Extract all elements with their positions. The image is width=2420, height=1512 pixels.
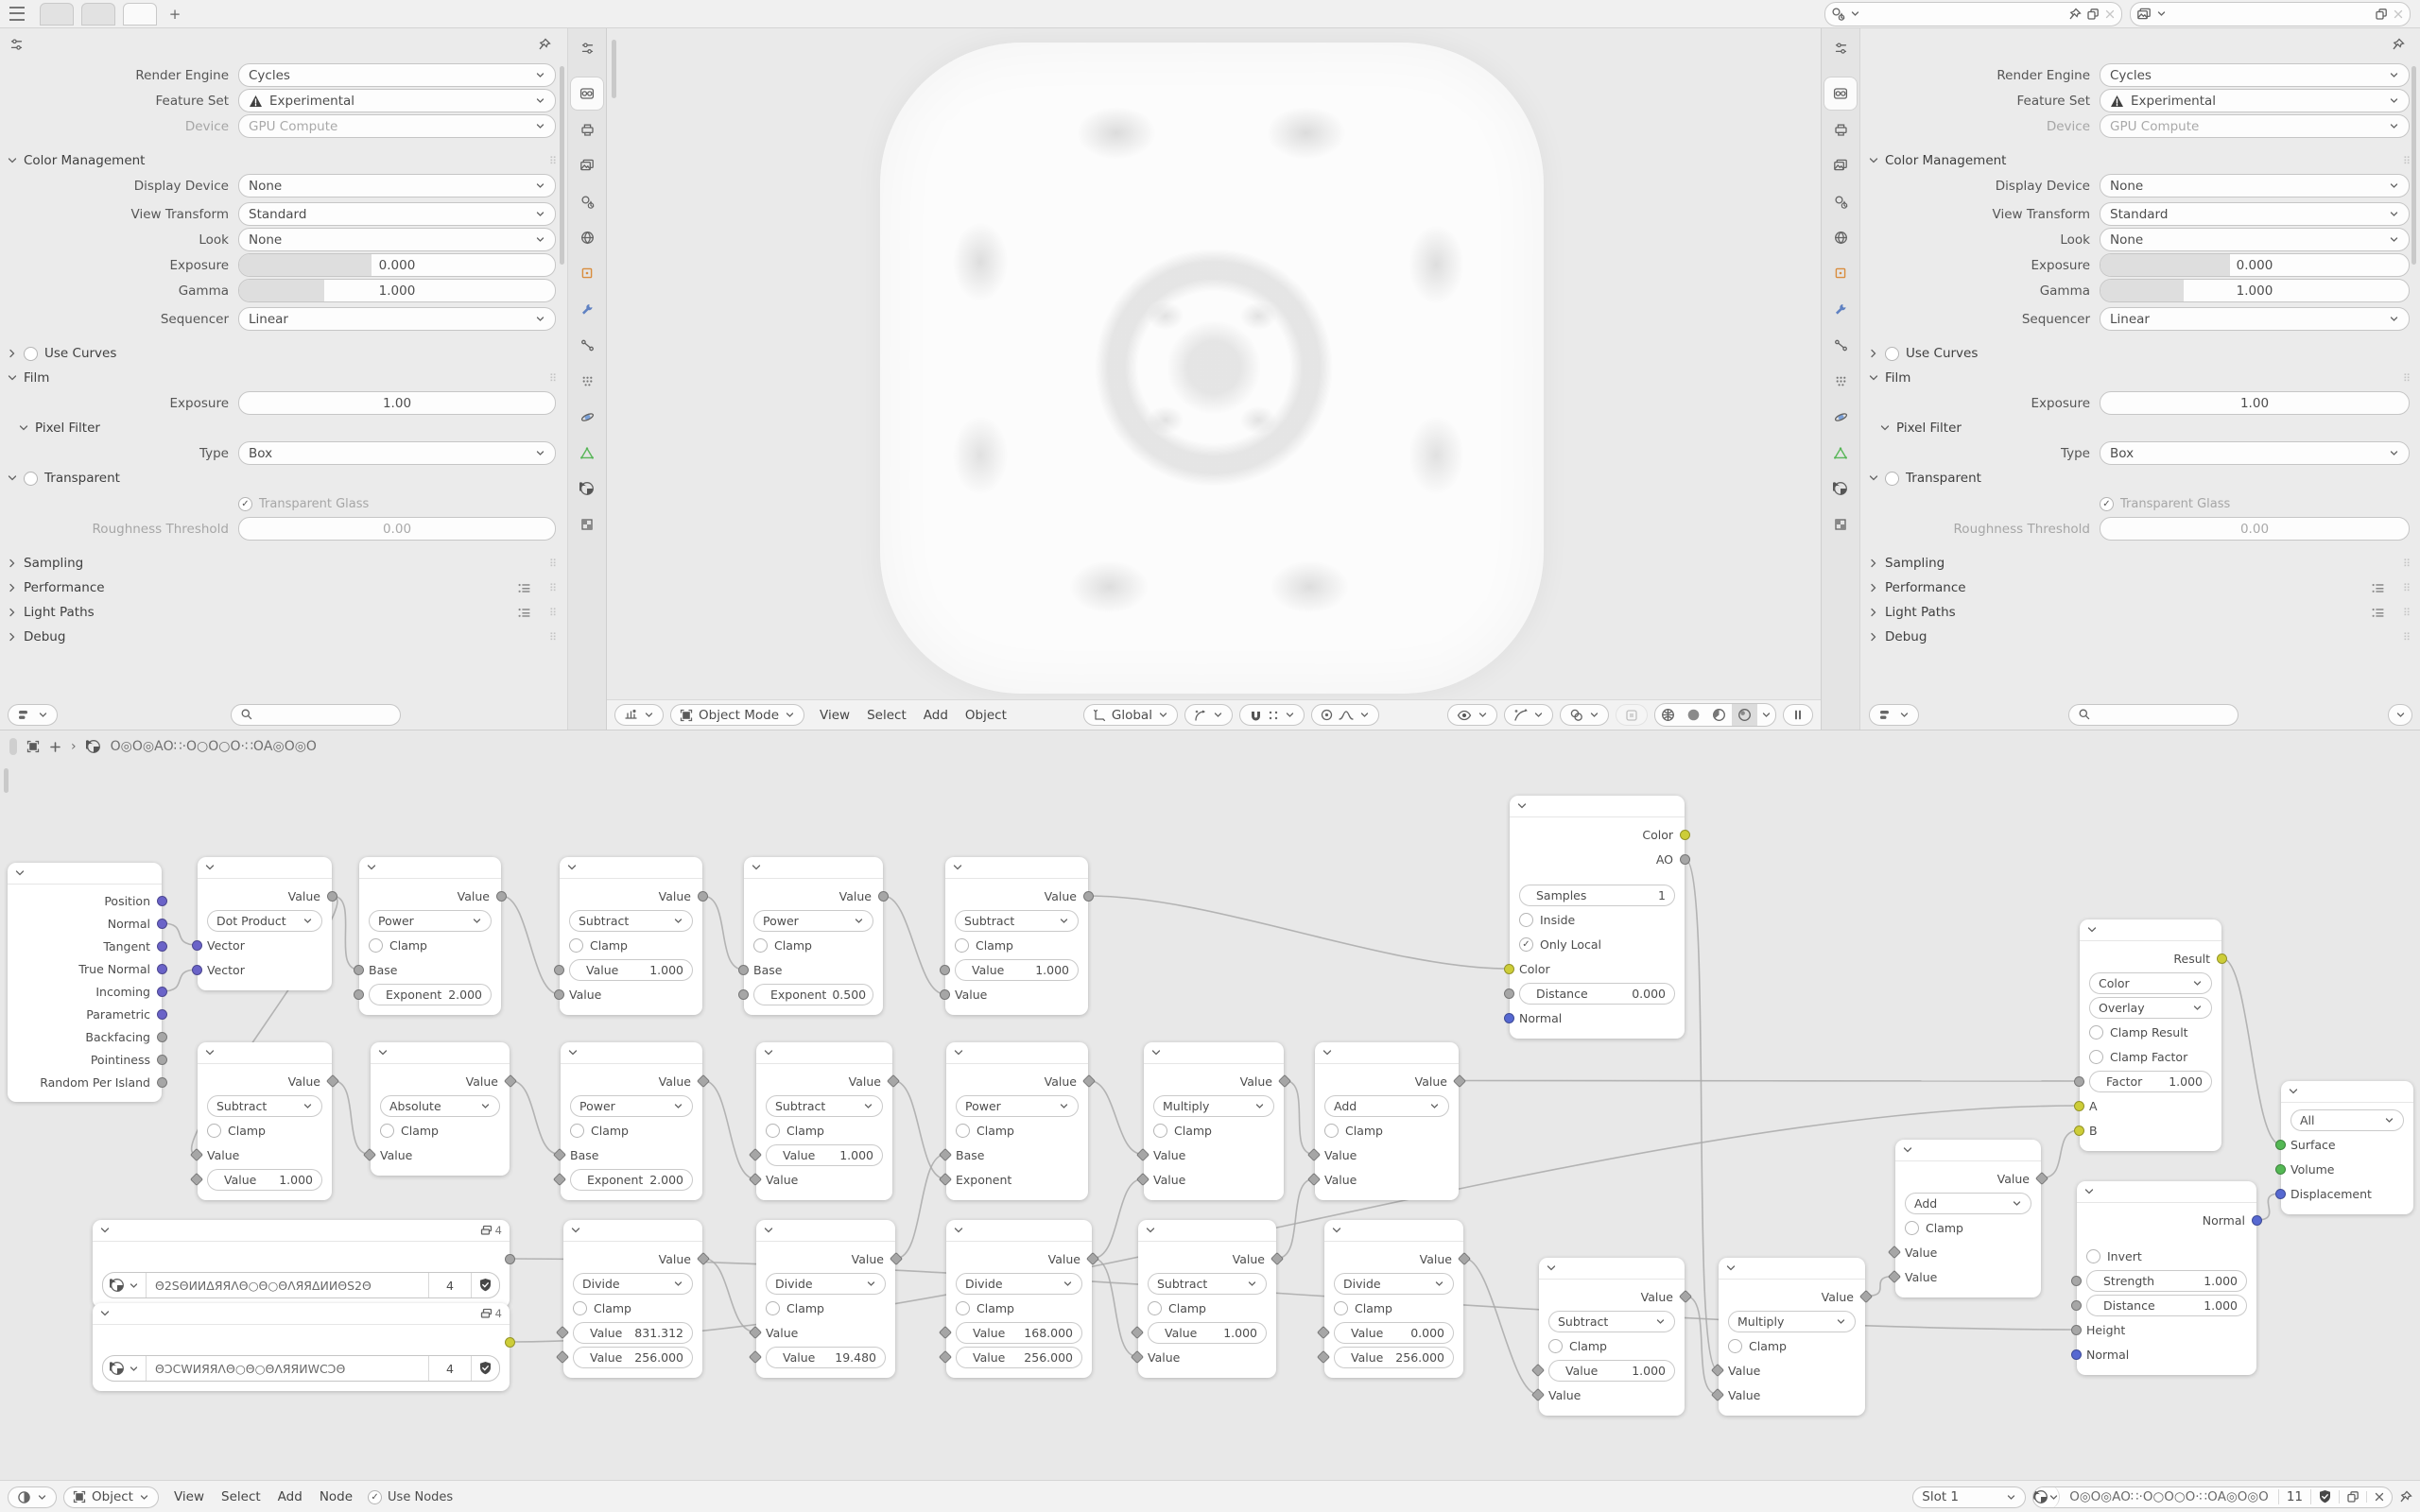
node-p5[interactable]: ValuePowerClampBaseExponent0.500 (744, 857, 883, 1015)
properties-tab-world[interactable] (1824, 221, 1857, 253)
node-dropdown[interactable]: Subtract (955, 910, 1079, 932)
input-socket[interactable] (2275, 1189, 2286, 1199)
node-header[interactable] (1324, 1220, 1463, 1242)
datablock-name-field[interactable]: Θ2SΘИИΔЯЯΛΘ○Θ○ΘΛЯЯΔИИΘS2Θ (147, 1279, 428, 1293)
input-socket[interactable] (2071, 1300, 2082, 1311)
node-header[interactable] (1138, 1220, 1276, 1242)
checkbox-inside[interactable]: Inside (1519, 908, 1675, 931)
resize-handle[interactable] (9, 738, 17, 755)
input-socket[interactable] (939, 1147, 952, 1160)
section-use-curves[interactable]: Use Curves (1861, 341, 2420, 366)
close-icon[interactable] (2366, 1491, 2392, 1503)
checkbox-clamp[interactable]: Clamp (956, 1297, 1082, 1319)
scrollbar[interactable] (2411, 66, 2416, 265)
pin-icon[interactable] (2399, 1490, 2412, 1503)
checkbox-clamp[interactable]: Clamp (766, 1119, 883, 1142)
input-socket[interactable] (1317, 1325, 1330, 1338)
menu-select[interactable]: Select (213, 1483, 269, 1511)
properties-tab-nodes[interactable] (571, 329, 603, 361)
value-field[interactable]: Value168.000 (956, 1322, 1082, 1344)
node-d19[interactable]: ValueDivideClampValue168.000Value256.000 (946, 1220, 1092, 1378)
field-roughness-threshold[interactable]: 0.00 (2100, 517, 2410, 541)
node-dropdown[interactable]: Subtract (1548, 1311, 1675, 1332)
drag-grip-icon[interactable]: ⠿ (2403, 607, 2411, 619)
checkbox-icon[interactable] (24, 472, 38, 486)
checkbox-icon[interactable] (1885, 472, 1899, 486)
input-socket[interactable] (553, 1147, 566, 1160)
drag-grip-icon[interactable]: ⠿ (2403, 155, 2411, 167)
input-socket[interactable] (1531, 1387, 1545, 1400)
node-abs8[interactable]: ValueAbsoluteClampValue (371, 1042, 510, 1176)
viewport-3d[interactable]: Object Mode ViewSelectAddObject Global (607, 28, 1821, 730)
section-light-paths[interactable]: Light Paths⠿ (1861, 600, 2420, 625)
properties-tab-nodes[interactable] (1824, 329, 1857, 361)
shading-material-button[interactable] (1706, 704, 1732, 726)
output-socket[interactable] (504, 1074, 517, 1087)
input-socket[interactable] (1711, 1387, 1724, 1400)
node-canvas[interactable]: PositionNormalTangentTrue NormalIncoming… (0, 763, 2420, 1480)
node-s22[interactable]: ValueSubtractClampValue1.000Value (1539, 1258, 1685, 1416)
input-socket[interactable] (554, 965, 564, 975)
node-mix[interactable]: ResultColorOverlayClamp ResultClamp Fact… (2080, 919, 2221, 1151)
properties-tab-object[interactable] (1824, 257, 1857, 289)
section-use-curves[interactable]: Use Curves (0, 341, 567, 366)
input-socket[interactable] (2074, 1125, 2084, 1136)
dropdown-display-device[interactable]: None (238, 174, 556, 198)
node-gA[interactable]: 4 Θ2SΘИИΔЯЯΛΘ○Θ○ΘΛЯЯΔИИΘS2Θ 4 (93, 1220, 510, 1308)
slot-selector[interactable]: Slot 1 (1912, 1486, 2026, 1508)
section-sampling[interactable]: Sampling⠿ (0, 551, 567, 576)
properties-tab-object-data[interactable] (1824, 437, 1857, 469)
node-gB[interactable]: 4 ΘϽϹWИЯЯΛΘ○Θ○ΘΛЯЯИWϹϽΘ 4 (93, 1303, 510, 1391)
dropdown-device[interactable]: GPU Compute (2100, 114, 2410, 138)
node-editor-scrollbar[interactable] (4, 768, 9, 793)
properties-tab-texture[interactable] (571, 508, 603, 541)
properties-tab-tool[interactable] (571, 32, 603, 64)
value-field[interactable]: Value1.000 (1148, 1322, 1267, 1344)
input-socket[interactable] (2074, 1076, 2084, 1087)
properties-tab-modifiers[interactable] (1824, 293, 1857, 325)
output-socket[interactable] (697, 1251, 710, 1264)
input-socket[interactable] (1504, 1013, 1514, 1023)
proportional-editing[interactable] (1311, 704, 1379, 726)
node-header[interactable] (756, 1220, 895, 1242)
properties-tab-particles[interactable] (1824, 365, 1857, 397)
input-socket[interactable] (749, 1325, 762, 1338)
value-field[interactable]: Exponent0.500 (753, 984, 873, 1005)
pin-icon[interactable] (2068, 8, 2082, 21)
dropdown-sequencer[interactable]: Linear (2100, 307, 2410, 331)
menu-object[interactable]: Object (957, 701, 1015, 730)
value-field[interactable]: Value1.000 (569, 959, 693, 981)
value-field[interactable]: Exponent2.000 (369, 984, 492, 1005)
node-d18[interactable]: ValueDivideClampValueValue19.480 (756, 1220, 895, 1378)
node-header[interactable] (359, 857, 501, 879)
output-socket[interactable] (1458, 1251, 1471, 1264)
menu-view[interactable]: View (811, 701, 858, 730)
node-header[interactable] (1539, 1258, 1685, 1280)
section-debug[interactable]: Debug⠿ (1861, 625, 2420, 649)
drag-grip-icon[interactable]: ⠿ (2403, 582, 2411, 594)
editor-type-button[interactable] (8, 1486, 57, 1508)
output-socket[interactable] (157, 896, 167, 906)
properties-tab-modifiers[interactable] (571, 293, 603, 325)
output-socket[interactable] (327, 891, 337, 902)
section-color-management[interactable]: Color Management⠿ (1861, 148, 2420, 173)
node-header[interactable]: 4 (93, 1303, 510, 1325)
node-dropdown[interactable]: Add (1905, 1193, 2031, 1214)
drag-grip-icon[interactable]: ⠿ (549, 582, 558, 594)
output-socket[interactable] (1082, 1074, 1096, 1087)
input-socket[interactable] (940, 989, 950, 1000)
properties-tab-physics[interactable] (1824, 401, 1857, 433)
drag-grip-icon[interactable]: ⠿ (549, 372, 558, 385)
checkbox-only-local[interactable]: ✓Only Local (1519, 933, 1675, 955)
section-light-paths[interactable]: Light Paths⠿ (0, 600, 567, 625)
output-socket[interactable] (157, 1032, 167, 1042)
output-socket[interactable] (2035, 1171, 2048, 1184)
input-socket[interactable] (192, 940, 202, 951)
output-socket[interactable] (1278, 1074, 1291, 1087)
datablock-menu[interactable] (103, 1273, 147, 1297)
orientation-selector[interactable]: Global (1083, 704, 1178, 726)
dropdown-feature-set[interactable]: Experimental (2100, 89, 2410, 112)
workspace-tab[interactable] (81, 3, 115, 26)
visibility-toggle[interactable] (1447, 704, 1497, 726)
value-field[interactable]: Value0.000 (1334, 1322, 1454, 1344)
node-dropdown[interactable]: Divide (573, 1273, 693, 1295)
node-header[interactable] (198, 1042, 332, 1064)
input-socket[interactable] (1307, 1172, 1321, 1185)
dropdown-type[interactable]: Box (2100, 441, 2410, 465)
node-s10[interactable]: ValueSubtractClampValue1.000Value (756, 1042, 892, 1200)
properties-tab-output[interactable] (571, 113, 603, 146)
drag-grip-icon[interactable]: ⠿ (2403, 372, 2411, 385)
output-socket[interactable] (326, 1074, 339, 1087)
node-m23[interactable]: ValueMultiplyClampValueValue (1719, 1258, 1865, 1416)
shading-rendered-button[interactable] (1732, 704, 1757, 726)
properties-tab-world[interactable] (571, 221, 603, 253)
value-field[interactable]: Distance1.000 (2086, 1295, 2247, 1316)
properties-tab-render[interactable] (571, 77, 603, 110)
overlays-toggle[interactable] (1560, 704, 1609, 726)
node-outn[interactable]: AllSurfaceVolumeDisplacement (2281, 1081, 2413, 1214)
node-s7[interactable]: ValueSubtractClampValueValue1.000 (198, 1042, 332, 1200)
view-layer-selector[interactable] (2130, 2, 2411, 26)
node-header[interactable] (744, 857, 883, 879)
scrollbar[interactable] (560, 66, 564, 265)
node-dropdown[interactable]: Dot Product (207, 910, 322, 932)
checkbox-icon[interactable] (24, 347, 38, 361)
properties-tab-physics[interactable] (571, 401, 603, 433)
menu-add[interactable]: Add (269, 1483, 311, 1511)
checkbox-clamp[interactable]: Clamp (570, 1119, 693, 1142)
field-exposure[interactable]: 1.00 (238, 391, 556, 415)
node-a13[interactable]: ValueAddClampValueValue (1315, 1042, 1459, 1200)
value-field[interactable]: Value256.000 (1334, 1347, 1454, 1368)
properties-tab-material[interactable] (571, 472, 603, 505)
checkbox-icon[interactable] (1885, 347, 1899, 361)
section-film[interactable]: Film⠿ (1861, 366, 2420, 390)
pivot-selector[interactable] (1184, 704, 1233, 726)
node-dropdown[interactable]: Power (753, 910, 873, 932)
output-socket[interactable] (698, 891, 708, 902)
properties-tab-texture[interactable] (1824, 508, 1857, 541)
drag-grip-icon[interactable]: ⠿ (2403, 631, 2411, 644)
input-socket[interactable] (556, 1325, 569, 1338)
checkbox-clamp[interactable]: Clamp (753, 934, 873, 956)
input-socket[interactable] (1136, 1172, 1149, 1185)
drag-grip-icon[interactable]: ⠿ (549, 607, 558, 619)
copy-icon[interactable] (2375, 8, 2388, 21)
value-field[interactable]: Exponent2.000 (570, 1169, 693, 1191)
drag-grip-icon[interactable]: ⠿ (2403, 558, 2411, 570)
node-header[interactable] (946, 1220, 1092, 1242)
menu-icon[interactable] (9, 7, 25, 21)
view-layer-name-field[interactable] (2171, 6, 2370, 23)
dropdown-sequencer[interactable]: Linear (238, 307, 556, 331)
output-socket[interactable] (1680, 854, 1690, 865)
node-dropdown[interactable]: Subtract (766, 1095, 883, 1117)
node-header[interactable] (1719, 1258, 1865, 1280)
node-dropdown[interactable]: Divide (1334, 1273, 1454, 1295)
menu-add[interactable]: Add (915, 701, 957, 730)
output-socket[interactable] (2252, 1215, 2262, 1226)
node-header[interactable]: 4 (93, 1220, 510, 1242)
properties-tab-view-layer[interactable] (1824, 149, 1857, 181)
output-socket[interactable] (1086, 1251, 1099, 1264)
checkbox-clamp-factor[interactable]: Clamp Factor (2089, 1045, 2212, 1068)
shader-type-selector[interactable]: Object (63, 1486, 159, 1508)
field-exposure[interactable]: 1.00 (2100, 391, 2410, 415)
user-count[interactable]: 11 (2278, 1489, 2310, 1504)
node-dropdown[interactable]: Absolute (380, 1095, 500, 1117)
checkbox-clamp[interactable]: Clamp (1548, 1334, 1675, 1357)
input-socket[interactable] (749, 1147, 762, 1160)
output-socket[interactable] (1083, 891, 1094, 902)
checkbox-clamp[interactable]: Clamp (207, 1119, 322, 1142)
input-socket[interactable] (738, 965, 749, 975)
checkbox-clamp-result[interactable]: Clamp Result (2089, 1021, 2212, 1043)
properties-tab-view-layer[interactable] (571, 149, 603, 181)
dropdown-render-engine[interactable]: Cycles (238, 63, 556, 87)
value-field[interactable]: Value256.000 (573, 1347, 693, 1368)
list-icon[interactable] (2371, 607, 2385, 619)
value-field[interactable]: Distance0.000 (1519, 983, 1675, 1005)
drag-grip-icon[interactable]: ⠿ (549, 558, 558, 570)
section-performance[interactable]: Performance⠿ (1861, 576, 2420, 600)
datablock-name-field[interactable]: ΘϽϹWИЯЯΛΘ○Θ○ΘΛЯЯИWϹϽΘ (147, 1362, 428, 1376)
input-socket[interactable] (556, 1349, 569, 1363)
section-performance[interactable]: Performance⠿ (0, 576, 567, 600)
material-name-field[interactable]: Ο◎Ο◎ΑΟ∷·Ο○Ο○Ο·∷ΟΑ◎Ο◎Ο (2060, 1489, 2278, 1504)
section-sampling[interactable]: Sampling⠿ (1861, 551, 2420, 576)
pin-icon[interactable] (2392, 38, 2405, 51)
dropdown-view-transform[interactable]: Standard (2100, 202, 2410, 226)
properties-tab-object-data[interactable] (571, 437, 603, 469)
dropdown-view-transform[interactable]: Standard (238, 202, 556, 226)
scene-name-field[interactable] (1865, 6, 2064, 23)
xray-toggle[interactable] (1616, 704, 1648, 726)
node-dropdown[interactable]: Multiply (1728, 1311, 1856, 1332)
input-socket[interactable] (2074, 1101, 2084, 1111)
output-socket[interactable] (157, 919, 167, 929)
workspace-tab[interactable] (40, 3, 74, 26)
output-socket[interactable] (1680, 830, 1690, 840)
node-header[interactable] (1315, 1042, 1459, 1064)
node-dot[interactable]: ValueDot ProductVectorVector (198, 857, 332, 990)
input-socket[interactable] (1307, 1147, 1321, 1160)
dropdown-render-engine[interactable]: Cycles (2100, 63, 2410, 87)
value-field[interactable]: Value1.000 (955, 959, 1079, 981)
output-socket[interactable] (157, 987, 167, 997)
value-field[interactable]: Value19.480 (766, 1347, 886, 1368)
filter-toggle-button[interactable] (1869, 704, 1919, 726)
input-socket[interactable] (1711, 1363, 1724, 1376)
input-socket[interactable] (1888, 1269, 1901, 1282)
drag-grip-icon[interactable]: ⠿ (549, 155, 558, 167)
checkbox-clamp[interactable]: Clamp (1905, 1216, 2031, 1239)
menu-view[interactable]: View (165, 1483, 213, 1511)
properties-tab-material[interactable] (1824, 472, 1857, 505)
shader-node-editor[interactable]: › Ο◎Ο◎ΑΟ∷·Ο○Ο○Ο·∷ΟΑ◎Ο◎Ο PositionNormalTa… (0, 730, 2420, 1512)
node-a24[interactable]: ValueAddClampValueValue (1895, 1140, 2041, 1297)
menu-node[interactable]: Node (311, 1483, 361, 1511)
section-pixel-filter[interactable]: Pixel Filter (0, 416, 567, 440)
section-pixel-filter[interactable]: Pixel Filter (1861, 416, 2420, 440)
input-socket[interactable] (1131, 1325, 1144, 1338)
shading-solid-button[interactable] (1681, 704, 1706, 726)
dropdown-device[interactable]: GPU Compute (238, 114, 556, 138)
node-dropdown[interactable]: Subtract (1148, 1273, 1267, 1295)
input-socket[interactable] (553, 1172, 566, 1185)
value-field[interactable]: Value1.000 (1548, 1360, 1675, 1382)
input-socket[interactable] (749, 1172, 762, 1185)
section-transparent[interactable]: Transparent (0, 466, 567, 490)
checkbox-clamp[interactable]: Clamp (380, 1119, 500, 1142)
input-socket[interactable] (354, 989, 364, 1000)
node-header[interactable] (371, 1042, 510, 1064)
input-socket[interactable] (363, 1147, 376, 1160)
use-nodes-toggle[interactable]: ✓ Use Nodes (368, 1490, 453, 1504)
checkbox-clamp[interactable]: Clamp (573, 1297, 693, 1319)
datablock-menu[interactable] (103, 1356, 147, 1381)
field-gamma[interactable]: 1.000 (238, 279, 556, 302)
list-icon[interactable] (2371, 582, 2385, 594)
output-socket[interactable] (878, 891, 889, 902)
list-icon[interactable] (517, 582, 531, 594)
node-dropdown[interactable]: Power (369, 910, 492, 932)
node-header[interactable] (560, 857, 702, 879)
dropdown-display-device[interactable]: None (2100, 174, 2410, 198)
value-field[interactable]: Value831.312 (573, 1322, 693, 1344)
node-p9[interactable]: ValuePowerClampBaseExponent2.000 (561, 1042, 702, 1200)
properties-tab-scene[interactable] (571, 185, 603, 217)
node-dropdown[interactable]: All (2290, 1109, 2404, 1131)
node-d21[interactable]: ValueDivideClampValue0.000Value256.000 (1324, 1220, 1463, 1378)
menu-select[interactable]: Select (858, 701, 915, 730)
input-socket[interactable] (1888, 1245, 1901, 1258)
output-socket[interactable] (505, 1254, 515, 1264)
output-socket[interactable] (157, 964, 167, 974)
input-socket[interactable] (1136, 1147, 1149, 1160)
input-socket[interactable] (354, 965, 364, 975)
node-dropdown[interactable]: Subtract (569, 910, 693, 932)
input-socket[interactable] (939, 1172, 952, 1185)
checkbox-invert[interactable]: Invert (2086, 1245, 2247, 1267)
pin-icon[interactable] (538, 38, 551, 51)
snap-selector[interactable] (1239, 704, 1305, 726)
fake-user-shield-icon[interactable] (472, 1356, 499, 1381)
node-s6[interactable]: ValueSubtractClampValue1.000Value (945, 857, 1088, 1015)
checkbox-clamp[interactable]: Clamp (1148, 1297, 1267, 1319)
output-socket[interactable] (1679, 1289, 1692, 1302)
output-socket[interactable] (2217, 954, 2227, 964)
value-field[interactable]: Value1.000 (207, 1169, 322, 1191)
checkbox-clamp[interactable]: Clamp (955, 934, 1079, 956)
properties-tab-particles[interactable] (571, 365, 603, 397)
checkbox-clamp[interactable]: Clamp (369, 934, 492, 956)
node-geo[interactable]: PositionNormalTangentTrue NormalIncoming… (8, 863, 162, 1102)
node-header[interactable] (1510, 796, 1685, 817)
properties-tab-render[interactable] (1824, 77, 1857, 110)
section-transparent[interactable]: Transparent (1861, 466, 2420, 490)
node-dropdown[interactable]: Overlay (2089, 997, 2212, 1019)
options-button[interactable] (2388, 704, 2412, 726)
node-header[interactable] (2080, 919, 2221, 941)
workspace-tab-active[interactable] (123, 3, 157, 26)
node-dropdown[interactable]: Multiply (1153, 1095, 1274, 1117)
properties-tab-tool[interactable] (1824, 32, 1857, 64)
filter-toggle-button[interactable] (8, 704, 58, 726)
input-socket[interactable] (940, 965, 950, 975)
user-count[interactable]: 4 (428, 1273, 472, 1297)
node-dropdown[interactable]: Divide (766, 1273, 886, 1295)
node-header[interactable] (563, 1220, 702, 1242)
input-socket[interactable] (738, 989, 749, 1000)
field-exposure[interactable]: 0.000 (238, 253, 556, 277)
checkbox-transparent-glass[interactable]: ✓Transparent Glass (2100, 497, 2230, 511)
output-socket[interactable] (890, 1251, 903, 1264)
list-icon[interactable] (517, 607, 531, 619)
dropdown-look[interactable]: None (2100, 228, 2410, 251)
copy-icon[interactable] (2339, 1490, 2366, 1503)
input-socket[interactable] (192, 965, 202, 975)
properties-editor-icon[interactable] (9, 38, 24, 52)
node-p11[interactable]: ValuePowerClampBaseExponent (946, 1042, 1088, 1200)
properties-tab-scene[interactable] (1824, 185, 1857, 217)
node-header[interactable] (198, 857, 332, 879)
checkbox-clamp[interactable]: Clamp (569, 934, 693, 956)
node-header[interactable] (946, 1042, 1088, 1064)
value-field[interactable]: Value256.000 (956, 1347, 1082, 1368)
value-field[interactable]: Strength1.000 (2086, 1270, 2247, 1292)
output-socket[interactable] (505, 1337, 515, 1348)
node-dropdown[interactable]: Power (956, 1095, 1079, 1117)
node-bump[interactable]: NormalInvertStrength1.000Distance1.000He… (2077, 1181, 2256, 1375)
search-input[interactable] (2068, 704, 2238, 726)
output-socket[interactable] (157, 1055, 167, 1065)
value-field[interactable]: Value1.000 (766, 1144, 883, 1166)
node-header[interactable] (8, 863, 162, 885)
copy-icon[interactable] (2086, 8, 2100, 21)
node-s4[interactable]: ValueSubtractClampValue1.000Value (560, 857, 702, 1015)
scene-selector[interactable] (1824, 2, 2122, 26)
node-header[interactable] (756, 1042, 892, 1064)
output-socket[interactable] (1270, 1251, 1284, 1264)
node-dropdown[interactable]: Divide (956, 1273, 1082, 1295)
fake-user-shield-icon[interactable] (2310, 1489, 2339, 1504)
